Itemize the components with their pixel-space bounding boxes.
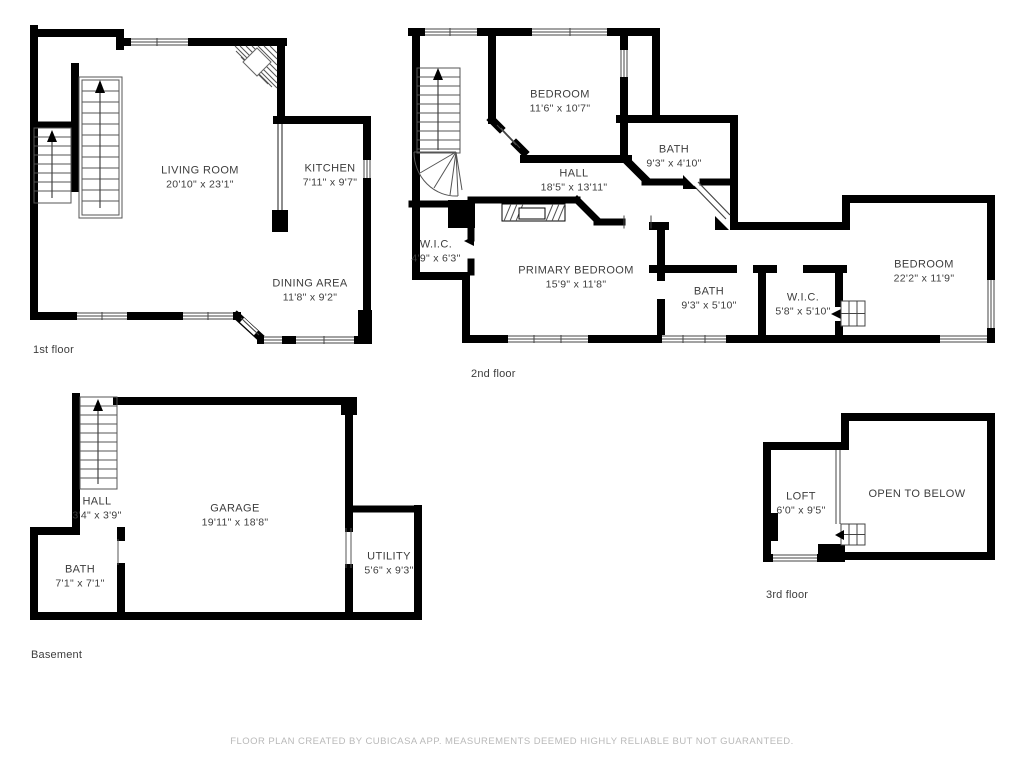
room-label-wic-1: W.I.C. 4'9" x 6'3" [411,239,460,266]
basement-doors [118,528,351,568]
room-label-living-room: LIVING ROOM 20'10" x 23'1" [161,165,239,192]
windows-3rd [773,554,817,562]
room-label-garage: GARAGE 19'11" x 18'8" [202,503,269,530]
room-label-utility: UTILITY 5'6" x 9'3" [364,551,413,578]
footer-disclaimer: FLOOR PLAN CREATED BY CUBICASA APP. MEAS… [0,736,1024,747]
floor-plan-page: LIVING ROOM 20'10" x 23'1" KITCHEN 7'11"… [0,0,1024,768]
room-label-bedroom-right: BEDROOM 22'2" x 11'9" [894,259,955,286]
room-label-kitchen: KITCHEN 7'11" x 9'7" [303,163,358,190]
closet-bifold [502,204,565,221]
stair-3rd-grid [841,524,865,545]
wall-block [448,200,475,228]
stair-up-arrow-icon [47,130,57,142]
kitchen-divider [278,124,282,210]
room-label-wic-2: W.I.C. 5'8" x 5'10" [775,292,830,319]
stair-arrow-icon [835,530,844,540]
room-label-hall-basement: HALL 3'4" x 3'9" [72,496,121,523]
caption-3rd-floor: 3rd floor [766,589,808,601]
stair-to-3rd [841,301,865,326]
stair-up-arrow-icon [95,80,105,93]
room-label-primary-bedroom: PRIMARY BEDROOM 15'9" x 11'8" [518,265,634,292]
door-arrow-icon [831,309,841,319]
room-label-bath-top: BATH 9'3" x 4'10" [646,144,701,171]
room-label-dining-area: DINING AREA 11'8" x 9'2" [272,278,347,305]
floor-plan-drawing [0,0,1024,768]
caption-basement: Basement [31,649,82,661]
room-label-bath-ensuite: BATH 9'3" x 5'10" [681,286,736,313]
wall-block [341,397,357,415]
caption-2nd-floor: 2nd floor [471,368,516,380]
room-label-bedroom-top: BEDROOM 11'6" x 10'7" [530,89,591,116]
room-label-bath-basement: BATH 7'1" x 7'1" [55,564,104,591]
room-label-hall-2nd: HALL 18'5" x 13'11" [541,168,608,195]
staircase-2nd-floor [414,68,462,196]
stair-up-arrow-icon [433,68,443,80]
corner-winder-stairs [235,46,277,88]
stair-up-arrow-icon [93,399,103,411]
room-label-loft: LOFT 6'0" x 9'5" [776,491,825,518]
room-label-open-to-below: OPEN TO BELOW [868,488,965,502]
loft-railing [836,450,840,524]
caption-1st-floor: 1st floor [33,344,74,356]
staircase-to-2nd [79,77,122,218]
